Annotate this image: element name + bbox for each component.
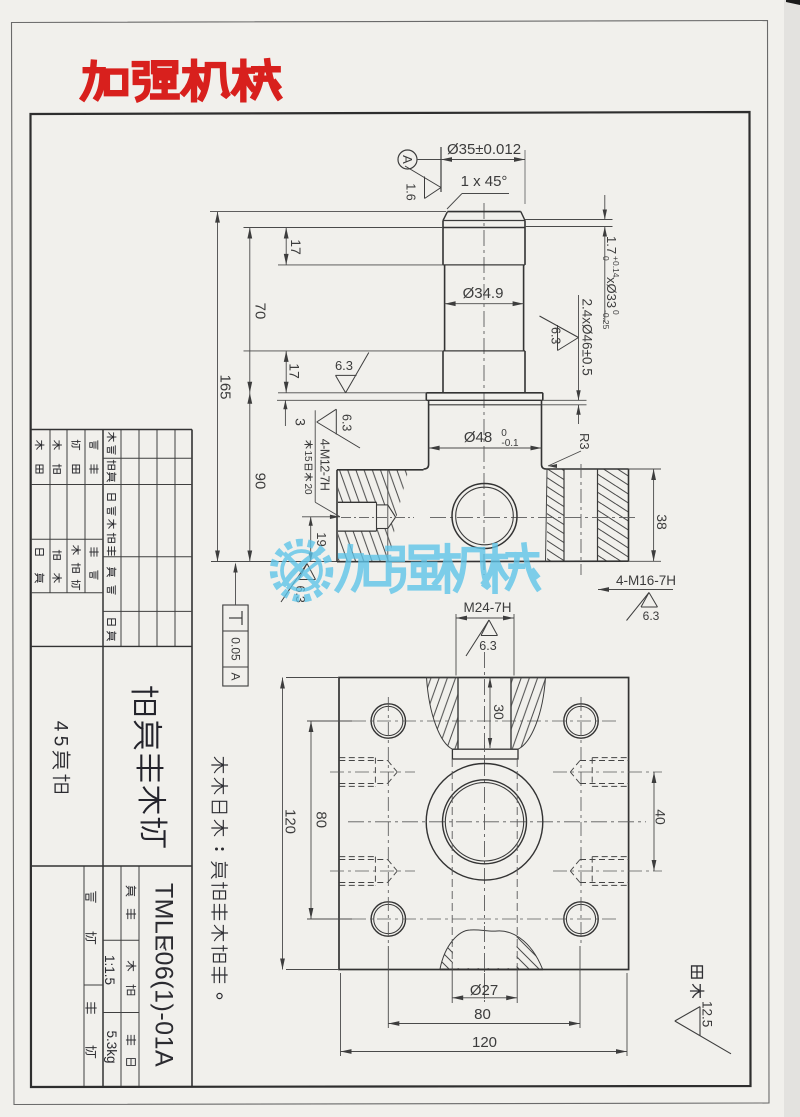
svg-text:40: 40 [653, 809, 669, 825]
svg-text:A: A [228, 672, 242, 680]
svg-text:Ø48: Ø48 [464, 429, 492, 446]
svg-text:19: 19 [314, 532, 329, 546]
svg-text:4-M16-7H: 4-M16-7H [616, 573, 676, 588]
svg-text:5: 5 [50, 736, 71, 747]
svg-text:xØ33: xØ33 [604, 277, 619, 308]
svg-text:M24-7H: M24-7H [463, 600, 511, 615]
svg-text:12.5: 12.5 [699, 1001, 714, 1027]
svg-text:1.7: 1.7 [604, 236, 619, 254]
svg-text:4: 4 [50, 721, 71, 732]
svg-text:4-M12-7H: 4-M12-7H [318, 439, 332, 491]
svg-text:80: 80 [474, 1006, 491, 1023]
svg-text:1.6: 1.6 [404, 183, 418, 200]
svg-text:1:1.5: 1:1.5 [102, 955, 117, 985]
svg-text:Ø35±0.012: Ø35±0.012 [447, 141, 521, 158]
svg-text:120: 120 [281, 809, 298, 834]
svg-text:6.3: 6.3 [340, 414, 354, 431]
svg-text:90: 90 [252, 473, 269, 490]
svg-text:-0.25: -0.25 [601, 310, 611, 330]
svg-text:Ø27: Ø27 [470, 982, 498, 999]
svg-text:17: 17 [287, 363, 303, 379]
svg-text:3: 3 [293, 418, 309, 426]
svg-text:0.05: 0.05 [228, 637, 242, 661]
svg-text:0: 0 [611, 310, 621, 315]
svg-text:1 x 45°: 1 x 45° [461, 173, 508, 190]
svg-text:0: 0 [601, 256, 611, 261]
svg-text:20: 20 [302, 483, 313, 495]
svg-text:30: 30 [491, 704, 507, 720]
svg-text:TMLE06(1)-01A: TMLE06(1)-01A [150, 883, 178, 1067]
svg-text:80: 80 [312, 811, 329, 828]
svg-text:6.3: 6.3 [335, 358, 353, 373]
svg-text:A: A [400, 155, 415, 164]
svg-text:-0.1: -0.1 [501, 438, 519, 449]
svg-text:38: 38 [654, 514, 670, 530]
svg-text:70: 70 [252, 303, 269, 320]
svg-text:6.3: 6.3 [479, 639, 496, 653]
svg-text:5.3kg: 5.3kg [104, 1030, 119, 1063]
svg-text:+0.14: +0.14 [611, 256, 621, 278]
svg-text:6.3: 6.3 [549, 327, 563, 344]
svg-text:15: 15 [302, 450, 313, 462]
svg-text:165: 165 [217, 374, 234, 399]
svg-text:6.3: 6.3 [643, 609, 660, 623]
svg-text:R3: R3 [577, 433, 592, 450]
svg-text:Ø34.9: Ø34.9 [463, 285, 504, 302]
svg-text:2.4xØ46±0.5: 2.4xØ46±0.5 [580, 299, 595, 376]
svg-text:17: 17 [288, 239, 304, 255]
svg-text:120: 120 [472, 1034, 497, 1051]
